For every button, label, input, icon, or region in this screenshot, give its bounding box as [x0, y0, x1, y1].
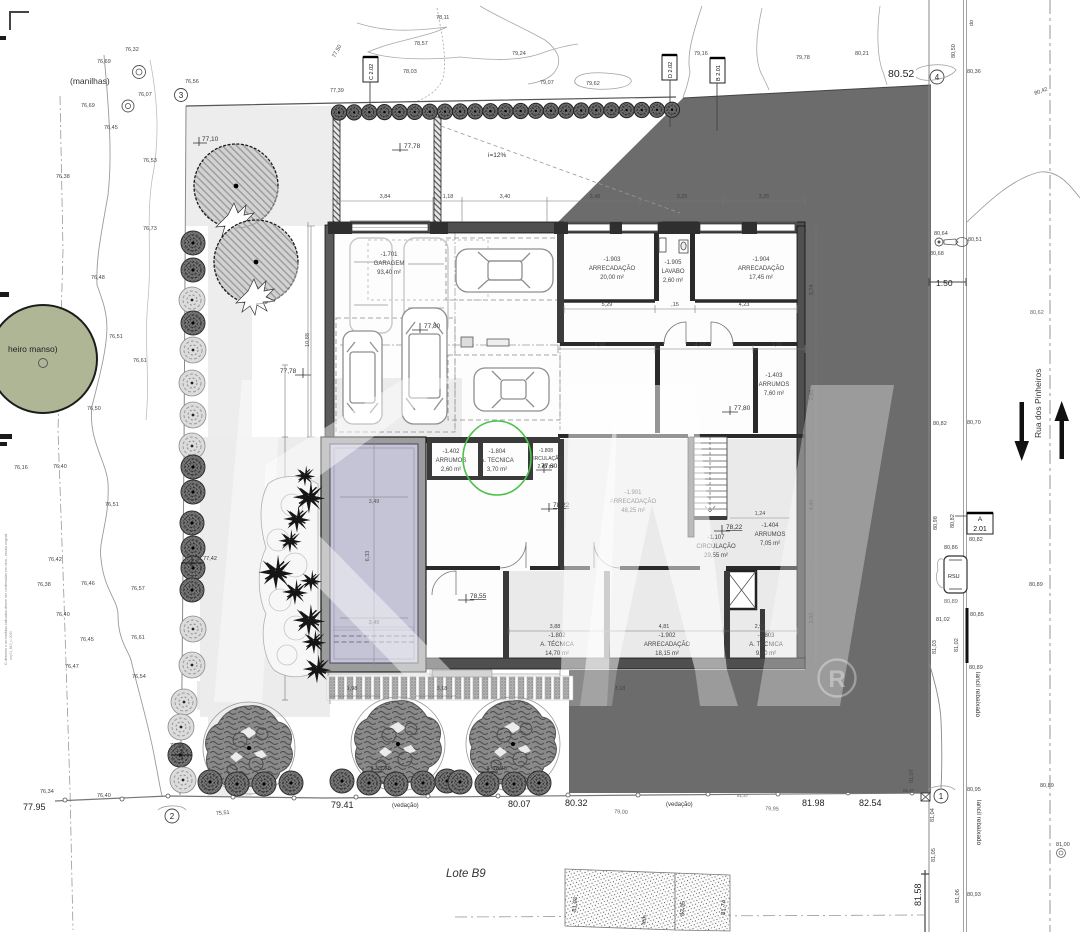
svg-text:81,07: 81,07 [909, 769, 915, 783]
svg-text:76,40: 76,40 [53, 464, 67, 470]
svg-text:17,45 m²: 17,45 m² [749, 275, 773, 281]
svg-text:3,48: 3,48 [590, 194, 601, 200]
svg-text:80,98: 80,98 [933, 516, 939, 530]
svg-text:2,94: 2,94 [755, 624, 766, 630]
svg-text:76,48: 76,48 [91, 275, 105, 281]
svg-text:76,38: 76,38 [37, 582, 51, 588]
svg-text:4: 4 [935, 73, 940, 82]
svg-text:4,12: 4,12 [695, 342, 706, 348]
svg-text:77,80: 77,80 [541, 463, 558, 470]
svg-text:76,40: 76,40 [56, 612, 70, 618]
svg-text:C 2.02: C 2.02 [369, 64, 375, 80]
svg-text:80,82: 80,82 [969, 537, 983, 543]
svg-text:81,06: 81,06 [955, 889, 961, 903]
svg-text:77.95: 77.95 [23, 802, 46, 812]
svg-text:3,40: 3,40 [500, 194, 511, 200]
svg-text:3,84: 3,84 [380, 194, 391, 200]
svg-text:R: R [828, 666, 845, 693]
svg-text:81,00: 81,00 [1056, 842, 1070, 848]
svg-text:GARAGEM: GARAGEM [374, 261, 405, 267]
svg-text:80,82: 80,82 [933, 421, 947, 427]
svg-text:3: 3 [179, 91, 184, 100]
svg-text:3,74: 3,74 [809, 285, 815, 296]
svg-text:3,98: 3,98 [595, 342, 606, 348]
svg-text:81,05: 81,05 [931, 848, 937, 862]
svg-text:80,89: 80,89 [1029, 582, 1043, 588]
svg-text:80,89: 80,89 [944, 599, 958, 605]
svg-text:arq 01_B10_rc 2020: arq 01_B10_rc 2020 [9, 631, 13, 660]
svg-text:76,69: 76,69 [81, 103, 95, 109]
svg-text:3,88: 3,88 [550, 624, 561, 630]
svg-text:76,56: 76,56 [185, 79, 199, 85]
svg-text:80,62: 80,62 [1030, 310, 1044, 316]
svg-text:81,47: 81,47 [903, 788, 915, 793]
svg-text:80,68: 80,68 [930, 251, 944, 257]
svg-text:-1.403: -1.403 [765, 373, 783, 379]
svg-text:1,18: 1,18 [443, 194, 454, 200]
svg-text:79,00: 79,00 [614, 809, 628, 816]
svg-text:80.52: 80.52 [888, 68, 914, 80]
svg-text:78,57: 78,57 [414, 41, 428, 47]
svg-text:5,29: 5,29 [602, 302, 613, 308]
svg-text:2,60 m²: 2,60 m² [441, 467, 461, 473]
svg-text:76,51: 76,51 [109, 334, 123, 340]
svg-text:3,70 m²: 3,70 m² [487, 467, 507, 473]
svg-text:76,61: 76,61 [133, 358, 147, 364]
svg-text:1,98: 1,98 [347, 686, 358, 692]
svg-text:3,25: 3,25 [759, 194, 770, 200]
svg-text:80,21: 80,21 [855, 51, 869, 57]
svg-text:3,25: 3,25 [677, 194, 688, 200]
svg-text:3,18: 3,18 [437, 686, 448, 692]
svg-text:80.07: 80.07 [508, 799, 531, 809]
svg-text:76,45: 76,45 [104, 125, 118, 131]
svg-text:77,94: 77,94 [170, 743, 184, 749]
svg-text:76,69: 76,69 [97, 59, 111, 65]
svg-text:D 2.02: D 2.02 [668, 62, 674, 78]
svg-text:-1.404: -1.404 [761, 523, 779, 529]
svg-text:80,89: 80,89 [969, 665, 983, 671]
svg-text:76,42: 76,42 [48, 557, 62, 563]
svg-text:RSU: RSU [948, 574, 960, 580]
svg-text:1,24: 1,24 [755, 511, 766, 517]
svg-text:77,10: 77,10 [202, 136, 219, 143]
svg-text:79,62: 79,62 [586, 81, 600, 87]
svg-text:1: 1 [939, 792, 944, 801]
svg-text:81,04: 81,04 [930, 808, 936, 822]
svg-text:do: do [969, 20, 975, 26]
svg-text:-1.804: -1.804 [488, 449, 506, 455]
svg-text:76,07: 76,07 [138, 92, 152, 98]
svg-text:81.58: 81.58 [913, 883, 923, 906]
svg-text:80,64: 80,64 [934, 231, 948, 237]
svg-text:76,50: 76,50 [87, 406, 101, 412]
svg-text:78,22: 78,22 [726, 524, 743, 531]
svg-text:ARRECADAÇÃO: ARRECADAÇÃO [589, 265, 636, 272]
svg-text:ARRUMOS: ARRUMOS [755, 532, 786, 538]
svg-text:76,61: 76,61 [131, 635, 145, 641]
svg-text:79,07: 79,07 [540, 80, 554, 86]
svg-text:77,78: 77,78 [377, 766, 391, 772]
svg-text:79,24: 79,24 [512, 51, 526, 57]
svg-text:2,60 m²: 2,60 m² [663, 278, 683, 284]
svg-text:78,55: 78,55 [470, 593, 487, 600]
svg-text:77,39: 77,39 [330, 88, 344, 94]
svg-text:81,47: 81,47 [737, 793, 749, 798]
svg-text:80,85: 80,85 [970, 612, 984, 618]
svg-text:-1.902: -1.902 [658, 633, 676, 639]
svg-text:80,36: 80,36 [967, 69, 981, 75]
svg-text:79,95: 79,95 [765, 806, 779, 813]
svg-text:1. 77,42: 1. 77,42 [197, 556, 217, 562]
svg-text:81,03: 81,03 [932, 640, 938, 654]
svg-text:81,02: 81,02 [954, 638, 960, 652]
svg-text:A: A [978, 516, 983, 523]
svg-text:10,88: 10,88 [305, 333, 311, 347]
svg-text:76,45: 76,45 [80, 637, 94, 643]
svg-text:76,51: 76,51 [105, 502, 119, 508]
svg-text:2: 2 [170, 812, 175, 821]
svg-text:ARRUMOS: ARRUMOS [759, 382, 790, 388]
svg-text:(manilhas): (manilhas) [70, 76, 110, 86]
svg-text:81,02: 81,02 [936, 617, 950, 623]
svg-text:(vedação): (vedação) [392, 803, 419, 809]
svg-text:-1.903: -1.903 [603, 257, 621, 263]
svg-text:ARRECADAÇÃO: ARRECADAÇÃO [738, 265, 785, 272]
svg-text:80,95: 80,95 [967, 787, 981, 793]
svg-text:80,51: 80,51 [968, 237, 982, 243]
svg-text:lancil rebaixado: lancil rebaixado [975, 800, 982, 846]
svg-text:77,50: 77,50 [331, 44, 343, 59]
svg-text:76,46: 76,46 [81, 581, 95, 587]
svg-text:20,00 m²: 20,00 m² [600, 275, 624, 281]
svg-text:3,18: 3,18 [615, 686, 626, 692]
svg-text:ARRUMOS: ARRUMOS [436, 458, 467, 464]
svg-text:80.32: 80.32 [565, 798, 588, 808]
svg-text:18,15 m²: 18,15 m² [655, 651, 679, 657]
svg-text:7,60 m²: 7,60 m² [764, 391, 784, 397]
svg-text:76,53: 76,53 [143, 158, 157, 164]
svg-text:-1.904: -1.904 [752, 257, 770, 263]
svg-text:LAVABO: LAVABO [661, 269, 684, 275]
svg-text:7,05 m²: 7,05 m² [760, 541, 780, 547]
svg-text:76,16: 76,16 [14, 465, 28, 471]
svg-text:79,16: 79,16 [694, 51, 708, 57]
svg-text:Lote B9: Lote B9 [446, 868, 486, 880]
svg-text:CIRCULAÇÃO: CIRCULAÇÃO [530, 455, 563, 462]
svg-text:1,50: 1,50 [772, 342, 783, 348]
svg-text:80,86: 80,86 [944, 545, 958, 551]
svg-text:i=12%: i=12% [488, 152, 506, 159]
svg-text:Rua dos Pinheiros: Rua dos Pinheiros [1033, 369, 1043, 438]
svg-text:4,81: 4,81 [659, 624, 670, 630]
svg-text:76,73: 76,73 [143, 226, 157, 232]
svg-text:80,42: 80,42 [1034, 87, 1049, 97]
svg-text:78,46: 78,46 [493, 766, 507, 772]
svg-text:-1.808: -1.808 [539, 448, 553, 454]
svg-text:80,93: 80,93 [967, 892, 981, 898]
svg-text:77,78: 77,78 [280, 368, 297, 375]
svg-text:3,49: 3,49 [369, 499, 380, 505]
svg-text:77,78: 77,78 [404, 143, 421, 150]
svg-text:80,70: 80,70 [967, 420, 981, 426]
svg-text:80,50: 80,50 [951, 44, 957, 58]
svg-text:81.98: 81.98 [802, 798, 825, 808]
svg-text:78,03: 78,03 [403, 69, 417, 75]
svg-text:79.41: 79.41 [331, 800, 354, 810]
svg-text:93,40 m²: 93,40 m² [377, 270, 401, 276]
svg-text:-1.905: -1.905 [664, 260, 682, 266]
svg-text:6,33: 6,33 [365, 551, 371, 562]
svg-text:78,11: 78,11 [436, 15, 449, 21]
svg-text:76,57: 76,57 [131, 586, 145, 592]
svg-text:A. TECNICA: A. TECNICA [480, 458, 514, 464]
svg-text:-1.701: -1.701 [380, 252, 398, 258]
svg-text:80,89: 80,89 [1040, 783, 1054, 789]
svg-text:lancil rebaixado: lancil rebaixado [974, 672, 981, 718]
svg-text:77,80: 77,80 [734, 405, 751, 412]
svg-text:82.54: 82.54 [859, 798, 882, 808]
svg-text:4,23: 4,23 [739, 302, 750, 308]
svg-text:-1.402: -1.402 [442, 449, 460, 455]
svg-text:O desenho e as medidas indicad: O desenho e as medidas indicadas devem s… [4, 533, 8, 665]
svg-text:ARRECADAÇÃO: ARRECADAÇÃO [644, 641, 691, 648]
svg-text:(vedação): (vedação) [666, 802, 693, 808]
svg-text:83,05: 83,05 [680, 900, 687, 916]
svg-text:76,34: 76,34 [40, 789, 54, 795]
svg-text:77,80: 77,80 [424, 323, 441, 330]
svg-text:80,82: 80,82 [950, 514, 956, 528]
svg-text:75,51: 75,51 [216, 810, 230, 817]
svg-text:76,47: 76,47 [65, 664, 79, 670]
svg-text:76,54: 76,54 [132, 674, 146, 680]
svg-text:B 2.01: B 2.01 [716, 65, 722, 81]
svg-text:79,78: 79,78 [796, 55, 810, 61]
svg-text:,15: ,15 [671, 302, 679, 308]
svg-text:76,38: 76,38 [56, 174, 70, 180]
svg-text:heiro manso): heiro manso) [8, 344, 58, 354]
svg-text:2.01: 2.01 [973, 526, 987, 533]
svg-text:81,74: 81,74 [721, 899, 728, 915]
svg-text:76,32: 76,32 [125, 47, 139, 53]
svg-text:1.50: 1.50 [936, 278, 953, 288]
